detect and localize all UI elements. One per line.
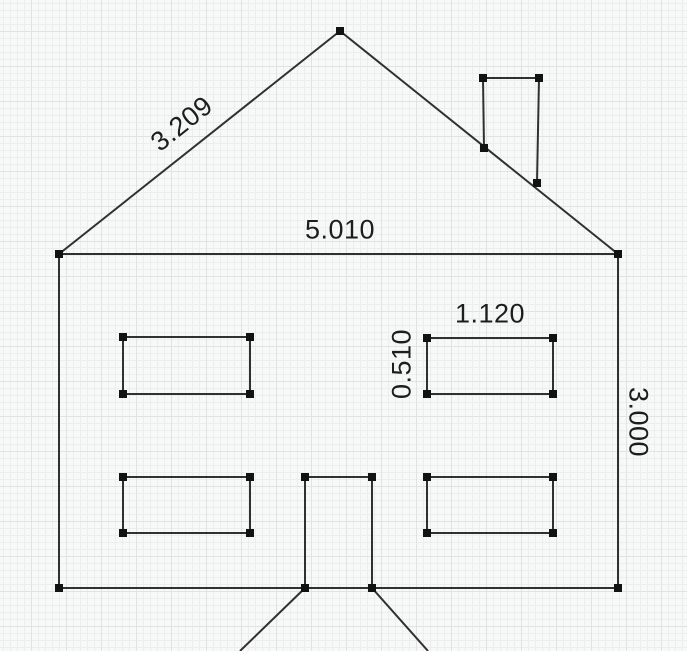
vertex-roof-apex[interactable] — [336, 27, 344, 35]
vertex-chimney-base-left[interactable] — [480, 144, 488, 152]
vertex-window-bottom-right-br[interactable] — [549, 529, 557, 537]
vertex-window-top-right-bl[interactable] — [423, 390, 431, 398]
vertex-window-bottom-right-tl[interactable] — [423, 473, 431, 481]
vertex-door-bottom-right[interactable] — [368, 584, 376, 592]
vertex-door-top-right[interactable] — [368, 473, 376, 481]
segment-chimney-left[interactable] — [483, 78, 484, 148]
vertex-window-top-right-tr[interactable] — [549, 334, 557, 342]
segment-roof-right-edge[interactable] — [340, 31, 618, 254]
vertex-window-bottom-left-br[interactable] — [246, 529, 254, 537]
dimension-label-window-height[interactable]: 0.510 — [387, 329, 418, 399]
vertex-window-top-right-tl[interactable] — [423, 334, 431, 342]
vertex-window-top-left-tl[interactable] — [119, 333, 127, 341]
vertex-window-top-right-br[interactable] — [549, 390, 557, 398]
window-bottom-right[interactable] — [427, 477, 553, 533]
vertex-chimney-base-right[interactable] — [533, 179, 541, 187]
dimension-label-window-width[interactable]: 1.120 — [455, 299, 525, 330]
window-top-left[interactable] — [123, 337, 250, 394]
vertex-eave-left[interactable] — [55, 250, 63, 258]
window-top-right[interactable] — [427, 338, 553, 394]
segment-roof-left-edge[interactable] — [59, 31, 340, 254]
vertex-window-bottom-right-tr[interactable] — [549, 473, 557, 481]
vertex-window-bottom-left-tr[interactable] — [246, 473, 254, 481]
vertex-window-top-left-br[interactable] — [246, 390, 254, 398]
dimension-label-eave-width[interactable]: 5.010 — [305, 215, 375, 246]
dimension-label-wall-height[interactable]: 3.000 — [623, 387, 654, 457]
vertex-window-top-left-tr[interactable] — [246, 333, 254, 341]
vertex-window-bottom-right-bl[interactable] — [423, 529, 431, 537]
vertex-eave-right[interactable] — [614, 250, 622, 258]
vertex-door-top-left[interactable] — [301, 473, 309, 481]
vertex-door-bottom-left[interactable] — [301, 584, 309, 592]
segment-chimney-right[interactable] — [537, 78, 539, 183]
vertex-window-bottom-left-bl[interactable] — [119, 529, 127, 537]
house-sketch-layer — [0, 0, 687, 651]
vertex-floor-left[interactable] — [55, 584, 63, 592]
vertex-window-top-left-bl[interactable] — [119, 390, 127, 398]
vertex-window-bottom-left-tl[interactable] — [119, 473, 127, 481]
vertex-chimney-top-left[interactable] — [479, 74, 487, 82]
segment-path-left[interactable] — [240, 588, 305, 651]
segment-path-right[interactable] — [372, 588, 428, 651]
vertex-floor-right[interactable] — [614, 584, 622, 592]
window-bottom-left[interactable] — [123, 477, 250, 533]
drawing-canvas[interactable]: 3.2095.0101.1200.5103.000 — [0, 0, 687, 651]
vertex-chimney-top-right[interactable] — [535, 74, 543, 82]
